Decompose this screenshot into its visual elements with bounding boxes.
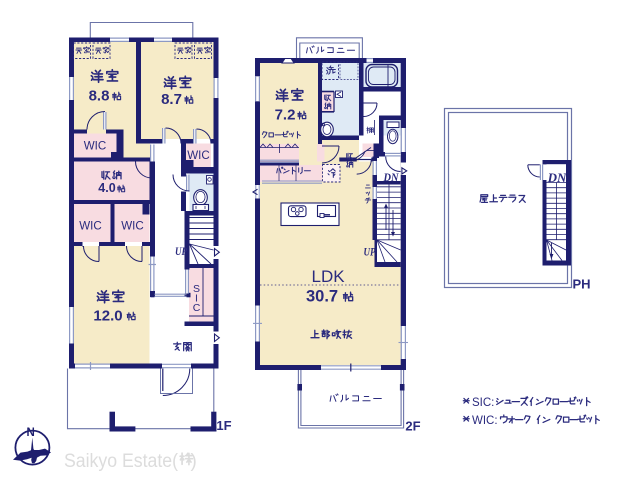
svg-text:C: C — [193, 302, 201, 314]
svg-text:WIC: WIC — [84, 139, 107, 153]
svg-text:UP: UP — [364, 247, 377, 259]
svg-text:WIC:: WIC: — [472, 415, 498, 427]
svg-text:DN: DN — [383, 170, 400, 184]
svg-text:2F: 2F — [405, 419, 420, 434]
svg-text:WIC: WIC — [187, 148, 210, 162]
svg-text:8.8: 8.8 — [89, 88, 110, 105]
svg-text:WIC: WIC — [79, 219, 102, 233]
svg-text:8.7: 8.7 — [161, 91, 182, 108]
svg-text:): ) — [191, 451, 197, 472]
svg-text:UP: UP — [175, 246, 188, 258]
svg-text:Saikyo Estate(: Saikyo Estate( — [64, 451, 179, 472]
svg-text:DN: DN — [547, 170, 567, 185]
svg-text:PH: PH — [572, 277, 590, 292]
svg-text:1F: 1F — [216, 418, 231, 433]
svg-text:12.0: 12.0 — [93, 308, 122, 325]
svg-text:LDK: LDK — [312, 267, 346, 286]
svg-text:30.7: 30.7 — [306, 288, 338, 306]
svg-text:WIC: WIC — [121, 219, 144, 233]
svg-text:7.2: 7.2 — [275, 107, 296, 124]
svg-text:4.0: 4.0 — [98, 181, 115, 195]
svg-text:SIC:: SIC: — [472, 397, 494, 409]
svg-text:N: N — [27, 427, 35, 439]
